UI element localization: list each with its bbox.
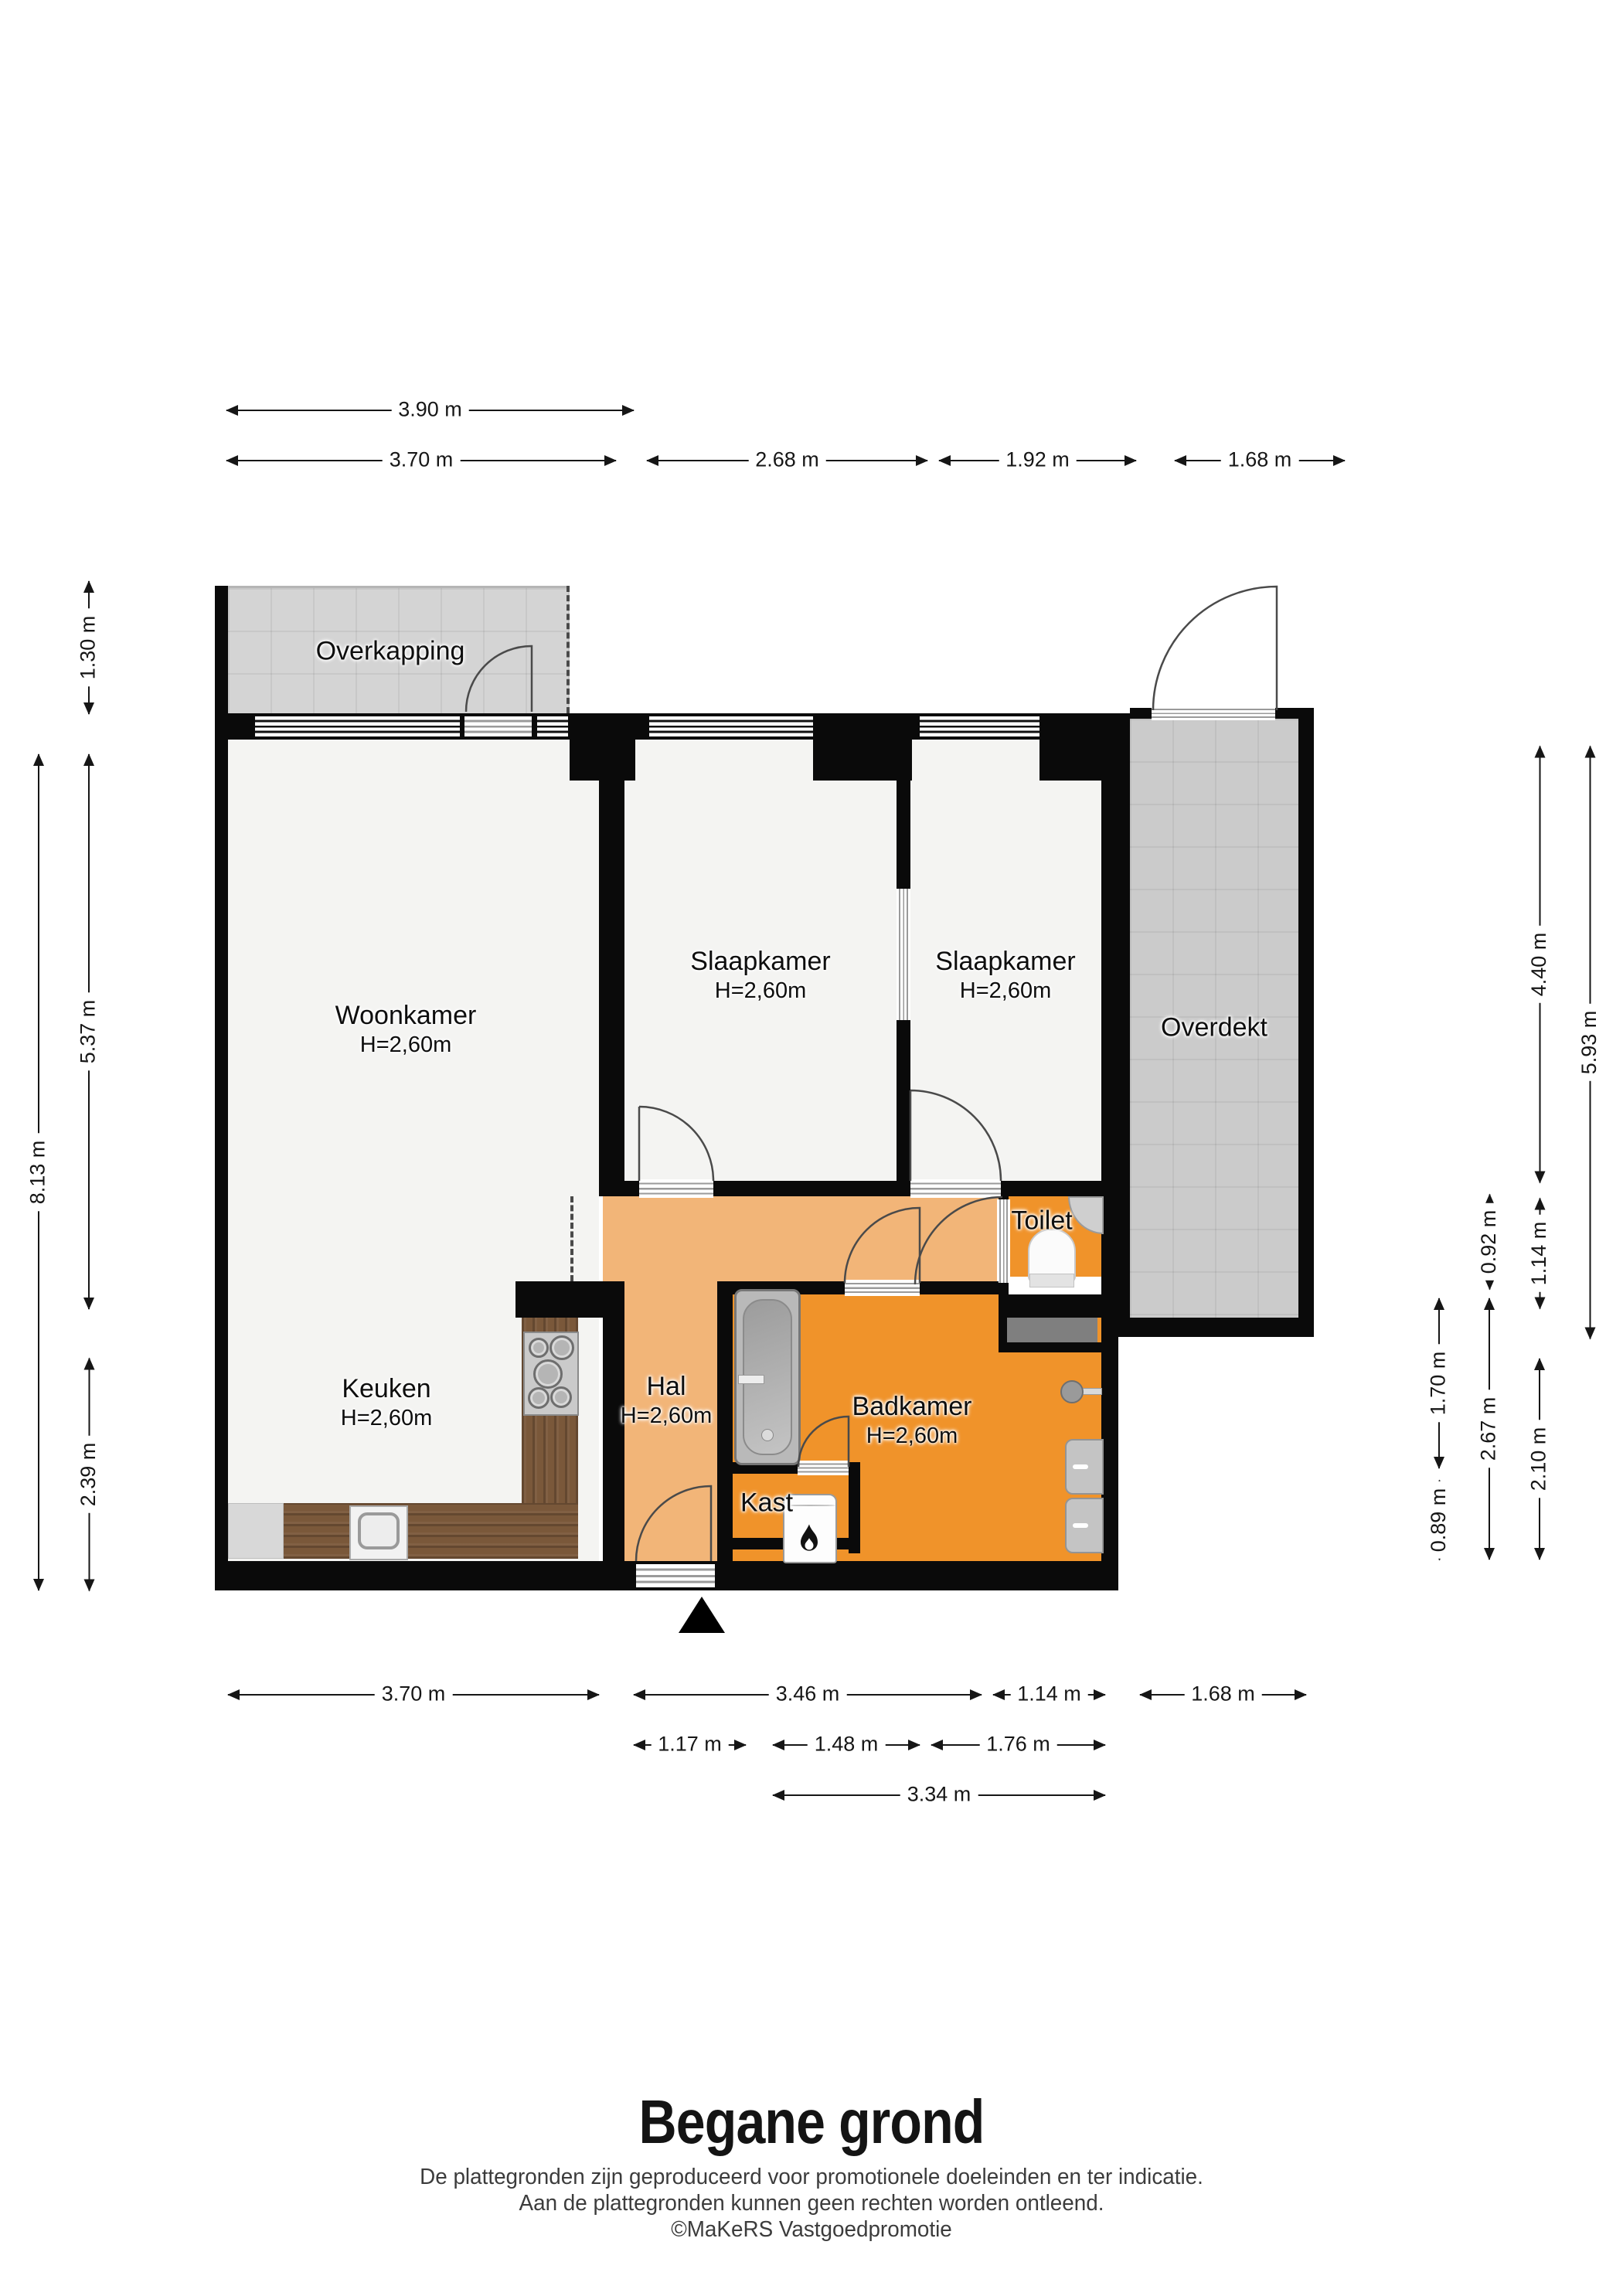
arrowhead-right-icon [1534, 1197, 1545, 1209]
dimension-label: 1.14 m [1010, 1682, 1088, 1706]
dimension-h-10-1.48m: 1.48 m [773, 1744, 920, 1746]
dimension-h-5-3.70m: 3.70 m [228, 1694, 599, 1696]
dimension-label: 1.30 m [77, 609, 100, 687]
room-label-kast: Kast [740, 1488, 793, 1519]
room-name-overdekt: Overdekt [1161, 1013, 1267, 1043]
room-name-kast: Kast [740, 1488, 793, 1519]
arrowhead-right-icon [33, 753, 44, 766]
dimension-v-20-0.92m: 0.92 m [1489, 1194, 1490, 1289]
dimension-v-22-1.70m: 1.70 m [1438, 1298, 1440, 1468]
dimension-label: 3.90 m [391, 398, 469, 422]
arrowhead-right-icon [1094, 1740, 1106, 1750]
dimension-v-15-5.37m: 5.37 m [88, 754, 90, 1309]
dimension-label: 2.10 m [1527, 1420, 1551, 1498]
dimension-label: 1.14 m [1527, 1214, 1551, 1292]
room-height-woonkamer: H=2,60m [335, 1032, 477, 1058]
arrowhead-right-icon [83, 753, 94, 766]
dimension-label: 3.34 m [900, 1783, 978, 1807]
room-label-toilet: Toilet [1011, 1206, 1072, 1236]
dimension-h-8-1.68m: 1.68 m [1140, 1694, 1306, 1696]
arrowhead-left-icon [633, 1740, 645, 1750]
overdekt-gate-arc [1153, 587, 1277, 710]
arrowhead-right-icon [1333, 455, 1346, 466]
arrowhead-left-icon [772, 1790, 784, 1801]
room-label-overdekt: Overdekt [1161, 1013, 1267, 1043]
dimension-label: 1.92 m [999, 448, 1077, 472]
arrowhead-right-icon [1484, 1298, 1495, 1310]
room-label-hal: HalH=2,60m [621, 1372, 712, 1429]
room-height-badkamer: H=2,60m [852, 1424, 972, 1449]
arrowhead-right-icon [1434, 1298, 1444, 1310]
room-name-overkapping: Overkapping [316, 637, 465, 667]
arrowhead-right-icon [1125, 455, 1137, 466]
toilet-door-arc [915, 1197, 1002, 1284]
arrowhead-left-icon [33, 1579, 44, 1591]
room-name-slaapkamer-1: Slaapkamer [690, 947, 830, 977]
arrowhead-right-icon [83, 1357, 94, 1369]
arrowhead-left-icon [1534, 1548, 1545, 1560]
arrowhead-left-icon [83, 1298, 94, 1310]
dimension-v-19-2.10m: 2.10 m [1539, 1359, 1540, 1560]
dimension-v-16-2.39m: 2.39 m [88, 1358, 90, 1590]
dimension-label: 1.70 m [1427, 1345, 1451, 1423]
room-name-keuken: Keuken [341, 1374, 432, 1404]
disclaimer: De plattegronden zijn geproduceerd voor … [0, 2164, 1623, 2243]
room-height-hal: H=2,60m [621, 1403, 712, 1429]
arrowhead-right-icon [734, 1740, 747, 1750]
arrowhead-left-icon [1434, 1457, 1444, 1469]
dimension-v-18-1.14m: 1.14 m [1539, 1198, 1540, 1308]
arrowhead-left-icon [1584, 1327, 1595, 1339]
dimension-v-13-8.13m: 8.13 m [38, 754, 39, 1590]
dimension-h-11-1.76m: 1.76 m [931, 1744, 1105, 1746]
dimension-h-6-3.46m: 3.46 m [634, 1694, 982, 1696]
arrowhead-right-icon [83, 580, 94, 593]
room-name-badkamer: Badkamer [852, 1392, 972, 1422]
room-height-keuken: H=2,60m [341, 1406, 432, 1431]
dimension-h-4-1.68m: 1.68 m [1175, 460, 1345, 461]
dimension-label: 1.48 m [808, 1733, 886, 1757]
arrowhead-right-icon [970, 1689, 982, 1700]
arrowhead-right-icon [604, 455, 617, 466]
room-label-woonkamer: WoonkamerH=2,60m [335, 1001, 477, 1058]
page-title: Begane grond [122, 2087, 1502, 2158]
dimension-v-21-2.67m: 2.67 m [1489, 1298, 1490, 1560]
arrowhead-right-icon [587, 1689, 600, 1700]
dimension-v-24-5.93m: 5.93 m [1589, 746, 1591, 1338]
arrowhead-left-icon [931, 1740, 943, 1750]
overkapping-door-arc [466, 646, 532, 712]
dimension-label: 1.68 m [1221, 448, 1299, 472]
dimension-label: 4.40 m [1527, 925, 1551, 1003]
arrowhead-left-icon [1534, 1297, 1545, 1309]
dimension-v-23-0.89m: 0.89 m [1438, 1480, 1440, 1560]
disclaimer-line-3: ©MaKeRS Vastgoedpromotie [32, 2216, 1591, 2243]
arrowhead-left-icon [1534, 1171, 1545, 1183]
dimension-label: 2.68 m [748, 448, 826, 472]
arrowhead-right-icon [622, 405, 635, 416]
arrowhead-left-icon [633, 1689, 645, 1700]
dimension-label: 5.37 m [77, 993, 100, 1071]
room-label-badkamer: BadkamerH=2,60m [852, 1392, 972, 1449]
arrowhead-left-icon [992, 1689, 1005, 1700]
dimension-h-12-3.34m: 3.34 m [773, 1794, 1105, 1796]
dimension-label: 2.67 m [1477, 1390, 1501, 1468]
room-label-slaapkamer-1: SlaapkamerH=2,60m [690, 947, 830, 1004]
room-name-slaapkamer-2: Slaapkamer [935, 947, 1075, 977]
slaapkamer1-door-arc [639, 1107, 713, 1181]
arrowhead-left-icon [226, 455, 238, 466]
room-name-toilet: Toilet [1011, 1206, 1072, 1236]
dimension-label: 3.70 m [375, 1682, 453, 1706]
dimension-h-9-1.17m: 1.17 m [634, 1744, 746, 1746]
arrowhead-left-icon [646, 455, 658, 466]
arrowhead-left-icon [1174, 455, 1186, 466]
dimension-h-2-2.68m: 2.68 m [647, 460, 927, 461]
dimension-label: 3.70 m [383, 448, 461, 472]
room-name-hal: Hal [621, 1372, 712, 1402]
dimension-v-14-1.30m: 1.30 m [88, 581, 90, 714]
dimension-v-17-4.40m: 4.40 m [1539, 746, 1540, 1182]
slaapkamer2-door-arc [910, 1090, 1001, 1181]
arrowhead-left-icon [938, 455, 951, 466]
arrowhead-right-icon [1534, 1358, 1545, 1370]
room-height-slaapkamer-1: H=2,60m [690, 978, 830, 1004]
disclaimer-line-1: De plattegronden zijn geproduceerd voor … [32, 2164, 1591, 2190]
arrowhead-left-icon [227, 1689, 240, 1700]
room-name-woonkamer: Woonkamer [335, 1001, 477, 1031]
dimension-h-0-3.90m: 3.90 m [226, 410, 634, 411]
dimension-label: 8.13 m [26, 1134, 50, 1212]
disclaimer-line-2: Aan de plattegronden kunnen geen rechten… [32, 2190, 1591, 2216]
arrowhead-right-icon [916, 455, 928, 466]
dimension-label: 0.92 m [1477, 1202, 1501, 1281]
dimension-h-1-3.70m: 3.70 m [226, 460, 616, 461]
room-label-overkapping: Overkapping [316, 637, 465, 667]
dimension-label: 0.89 m [1427, 1481, 1451, 1559]
kast-door-arc [798, 1417, 849, 1467]
front-door-arc [636, 1486, 711, 1561]
arrowhead-left-icon [226, 405, 238, 416]
arrowhead-right-icon [1534, 745, 1545, 757]
room-height-slaapkamer-2: H=2,60m [935, 978, 1075, 1004]
dimension-label: 3.46 m [769, 1682, 847, 1706]
arrowhead-right-icon [1295, 1689, 1307, 1700]
dimension-h-3-1.92m: 1.92 m [939, 460, 1136, 461]
arrowhead-right-icon [1094, 1790, 1106, 1801]
dimension-label: 1.17 m [651, 1733, 729, 1757]
arrowhead-left-icon [83, 702, 94, 715]
arrowhead-right-icon [1584, 745, 1595, 757]
dimension-label: 5.93 m [1577, 1003, 1601, 1081]
arrowhead-right-icon [908, 1740, 920, 1750]
arrowhead-left-icon [83, 1579, 94, 1591]
badkamer-door-arc [845, 1208, 920, 1283]
arrowhead-left-icon [1484, 1548, 1495, 1560]
dimension-h-7-1.14m: 1.14 m [993, 1694, 1105, 1696]
floorplan-page: OverkappingWoonkamerH=2,60mSlaapkamerH=2… [0, 0, 1623, 2296]
room-label-keuken: KeukenH=2,60m [341, 1374, 432, 1431]
dimension-label: 2.39 m [77, 1435, 100, 1513]
dimension-label: 1.68 m [1184, 1682, 1262, 1706]
room-label-slaapkamer-2: SlaapkamerH=2,60m [935, 947, 1075, 1004]
arrowhead-right-icon [1094, 1689, 1106, 1700]
door-swings [0, 0, 1623, 2296]
arrowhead-left-icon [772, 1740, 784, 1750]
dimension-label: 1.76 m [979, 1733, 1057, 1757]
arrowhead-left-icon [1139, 1689, 1152, 1700]
